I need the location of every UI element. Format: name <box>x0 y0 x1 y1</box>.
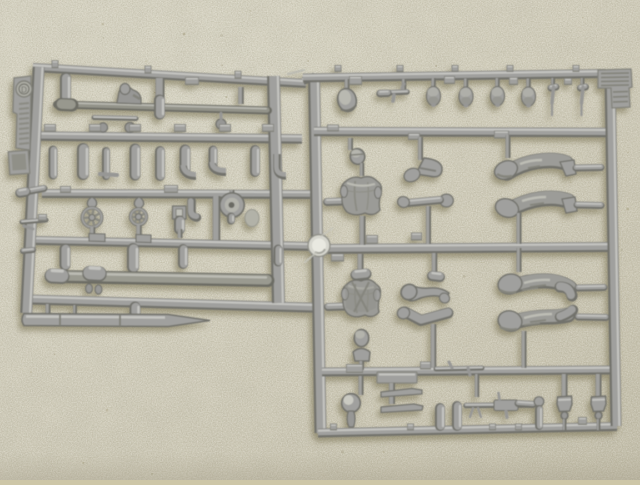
svg-text:D: D <box>21 86 27 95</box>
